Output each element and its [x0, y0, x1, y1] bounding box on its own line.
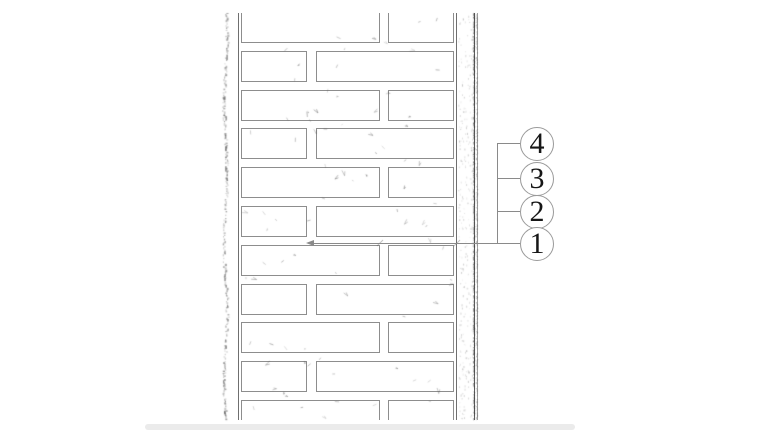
brick: [388, 322, 454, 353]
callout-number: 1: [530, 229, 545, 259]
brick: [316, 361, 454, 392]
veneer-face-line: [456, 13, 457, 420]
brick: [388, 245, 454, 276]
brick: [388, 167, 454, 198]
brick: [241, 51, 307, 82]
brick: [316, 284, 454, 315]
leader-line: [497, 211, 520, 212]
backup-wall-line: [238, 13, 239, 420]
brick: [316, 51, 454, 82]
brick: [388, 13, 454, 43]
brick: [388, 400, 454, 420]
wall-section-drawing: 4 3 2 1: [0, 0, 768, 432]
brick: [316, 206, 454, 237]
brick: [241, 245, 380, 276]
callout-circle-4: 4: [520, 127, 554, 161]
brick-veneer: [240, 13, 456, 420]
brick: [241, 361, 307, 392]
brick: [241, 206, 307, 237]
brick: [241, 90, 380, 121]
callout-circle-1: 1: [520, 227, 554, 261]
exterior-finish-line-inner: [474, 13, 475, 420]
callout-circle-2: 2: [520, 195, 554, 229]
brick: [388, 90, 454, 121]
leader-line: [497, 178, 520, 179]
callout-number: 4: [530, 129, 545, 159]
scan-artifact-band: [145, 424, 575, 430]
brick: [241, 167, 380, 198]
callout-connector-line: [497, 143, 498, 244]
brick: [241, 284, 307, 315]
callout-circle-3: 3: [520, 162, 554, 196]
callout-number: 3: [530, 164, 545, 194]
callout-number: 2: [530, 197, 545, 227]
exterior-finish-line-outer: [477, 13, 478, 420]
leader-arrowhead: [306, 240, 314, 246]
brick: [316, 128, 454, 159]
brick: [241, 13, 380, 43]
brick: [241, 322, 380, 353]
brick: [241, 128, 307, 159]
brick: [241, 400, 380, 420]
leader-line: [497, 143, 520, 144]
